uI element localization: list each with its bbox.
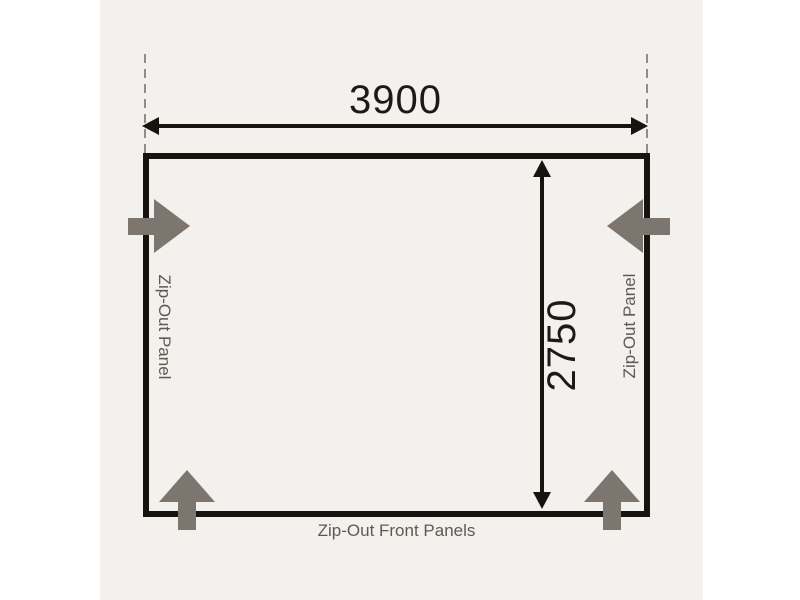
right-panel-label: Zip-Out Panel: [620, 274, 640, 379]
left-panel-label: Zip-Out Panel: [154, 275, 174, 380]
zip-arrow-left-icon: [128, 199, 191, 253]
zip-arrow-bottom-left-head: [159, 470, 215, 502]
arrowhead-down-icon: [533, 492, 551, 509]
front-panels-label: Zip-Out Front Panels: [143, 521, 650, 541]
arrowhead-up-icon: [533, 160, 551, 177]
zip-arrow-right-tail: [642, 218, 670, 235]
width-dimension-line: [146, 124, 644, 128]
width-dimension-label: 3900: [143, 80, 648, 120]
zip-arrow-left-head: [154, 199, 190, 253]
zip-arrow-left-tail: [128, 218, 156, 235]
zip-arrow-right-icon: [607, 199, 670, 253]
floorplan-canvas: 3900 2750 Zip-Out Panel Zip-Out Panel Zi…: [0, 0, 800, 600]
zip-arrow-bottom-right-head: [584, 470, 640, 502]
depth-dimension-label: 2750: [542, 299, 582, 392]
zip-arrow-right-head: [607, 199, 643, 253]
